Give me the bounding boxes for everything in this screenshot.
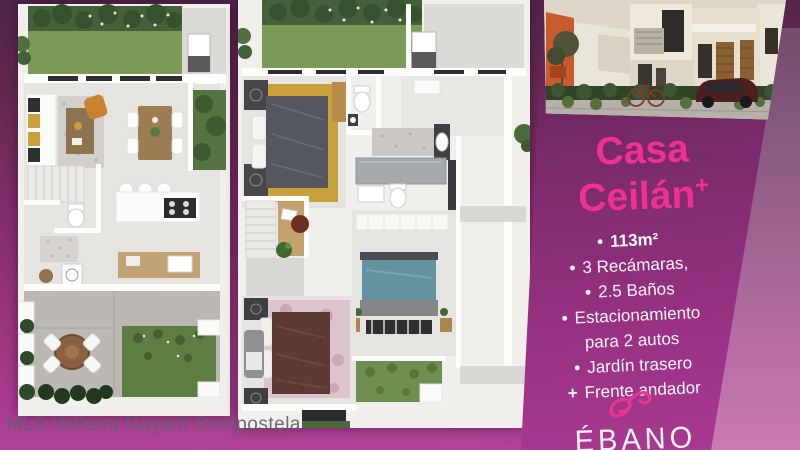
watermark: MLS Vallarta Nayarit Compostela (6, 414, 301, 436)
ground-floor-plan-drawing (18, 4, 230, 416)
bullet-icon: • (569, 258, 576, 277)
bullet-icon: • (574, 358, 581, 377)
house-render (544, 0, 786, 122)
logo-script-icon (599, 387, 670, 423)
flyer: Casa Ceilán+ •113m² •3 Recámaras, •2.5 B… (0, 0, 800, 450)
page-title: Casa Ceilán+ (537, 128, 750, 218)
title-line-2: Ceilán+ (538, 165, 749, 218)
house-render-drawing (544, 0, 786, 122)
upper-floor-plan (238, 0, 530, 428)
bullet-icon: • (585, 283, 592, 302)
title-plus: + (695, 172, 710, 199)
ground-floor-plan (18, 4, 230, 416)
bullet-icon: • (597, 232, 604, 251)
upper-floor-plan-drawing (238, 0, 530, 428)
feature-list: •113m² •3 Recámaras, •2.5 Baños •Estacio… (512, 223, 749, 408)
bullet-icon: • (561, 309, 568, 328)
brand-name: ÉBANO (540, 423, 731, 450)
brand-logo: ÉBANO residencial (539, 385, 732, 450)
